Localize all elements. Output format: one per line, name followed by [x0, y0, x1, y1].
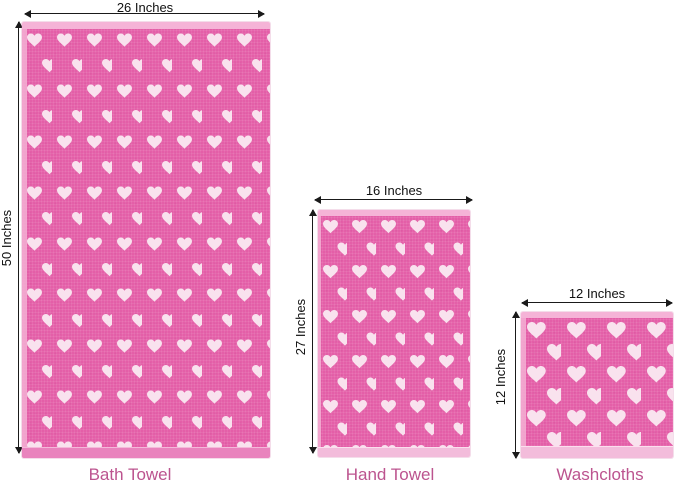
hand-towel-hem — [318, 447, 470, 457]
arrowhead-down-icon — [512, 452, 520, 459]
arrowhead-right-icon — [666, 299, 673, 307]
hand-towel-width-arrow — [315, 199, 472, 200]
bath-towel-height-arrow — [18, 22, 19, 453]
hand-towel-image — [318, 210, 470, 457]
bath-towel-height-label: 50 Inches — [0, 188, 14, 288]
hand-towel-fabric — [318, 216, 470, 448]
hand-towel-caption: Hand Towel — [318, 464, 462, 486]
hand-towel-height-label: 27 Inches — [294, 277, 308, 377]
heart-pattern — [521, 318, 673, 447]
washcloth-height-arrow — [515, 312, 516, 458]
hand-towel-width-label: 16 Inches — [315, 184, 473, 198]
washcloth-left-edge — [521, 318, 526, 458]
arrowhead-right-icon — [466, 196, 473, 204]
washcloth-top-edge — [521, 312, 673, 318]
hand-towel-top-edge — [318, 210, 470, 216]
washcloth-hem — [521, 446, 673, 458]
washcloth-height-label: 12 Inches — [494, 327, 508, 427]
bath-towel-left-edge — [22, 29, 27, 458]
heart-pattern — [318, 216, 470, 448]
bath-towel-caption: Bath Towel — [22, 464, 238, 486]
washcloth-caption: Washcloths — [521, 464, 679, 486]
heart-pattern — [22, 29, 270, 448]
bath-towel-fabric — [22, 29, 270, 448]
arrowhead-left-icon — [521, 299, 528, 307]
towel-size-chart: 26 Inches 50 Inches Bath Towel 16 In — [0, 0, 679, 487]
washcloth-image — [521, 312, 673, 458]
hand-towel-height-arrow — [312, 210, 313, 453]
washcloth-fabric — [521, 318, 673, 447]
arrowhead-down-icon — [309, 447, 317, 454]
washcloth-width-arrow — [522, 302, 672, 303]
bath-towel-top-edge — [22, 22, 270, 29]
hand-towel-left-edge — [318, 216, 321, 457]
washcloth-width-label: 12 Inches — [521, 287, 673, 301]
bath-towel-hem — [22, 447, 270, 458]
bath-towel-image — [22, 22, 270, 458]
arrowhead-up-icon — [309, 209, 317, 216]
arrowhead-left-icon — [314, 196, 321, 204]
arrowhead-right-icon — [258, 10, 265, 18]
arrowhead-up-icon — [512, 311, 520, 318]
bath-towel-width-arrow — [25, 13, 264, 14]
arrowhead-left-icon — [24, 10, 31, 18]
